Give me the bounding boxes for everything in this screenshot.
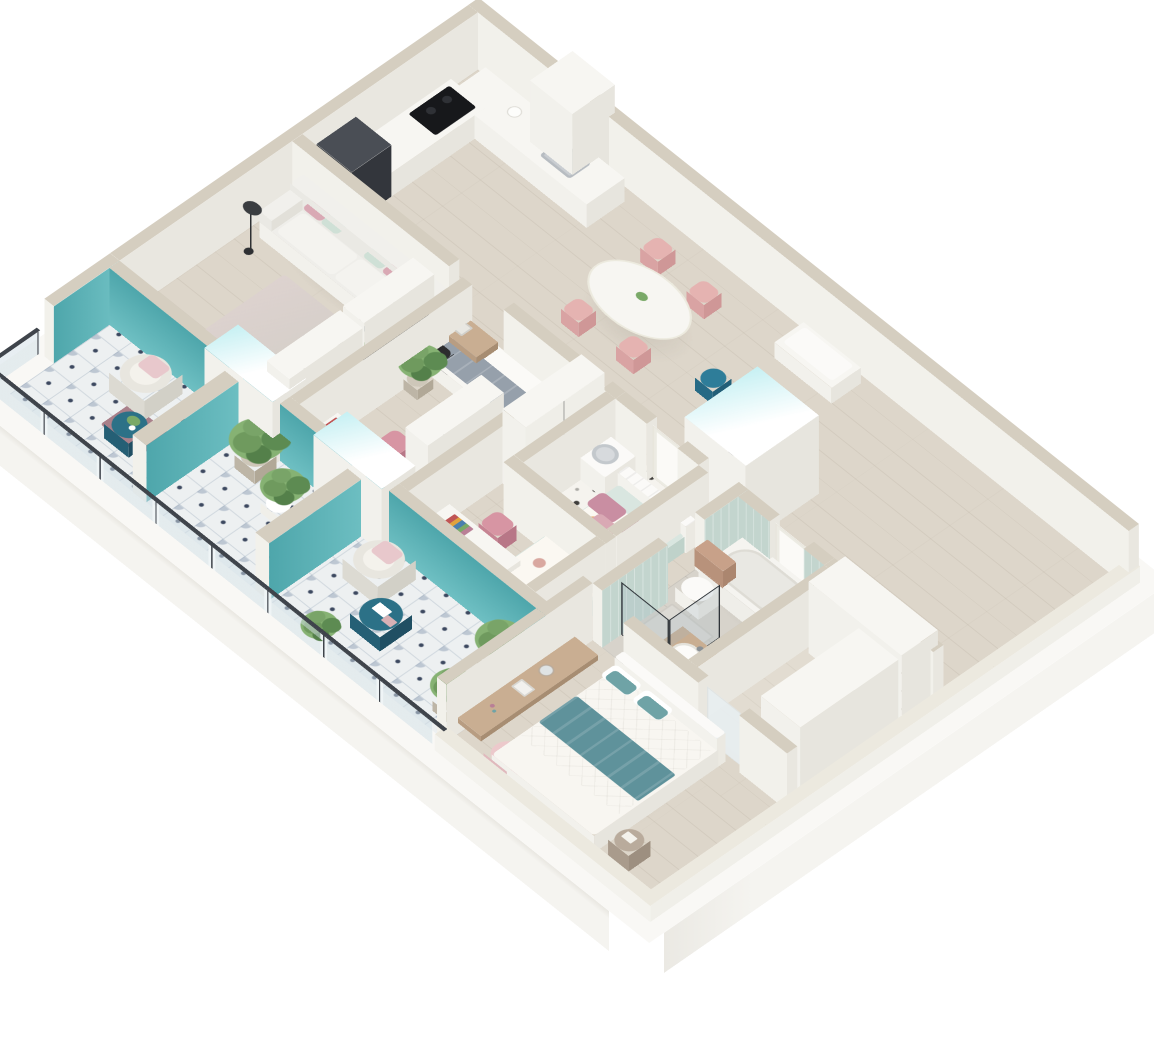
wall-corridor-bath-b-sw-face (593, 583, 603, 648)
isometric-apartment-scene (0, 0, 1154, 1052)
wall-nw-balcony-teal-sw-face (44, 299, 54, 364)
floor-lamp-pole (250, 210, 251, 252)
floor-plan-3d (10, 70, 1119, 905)
